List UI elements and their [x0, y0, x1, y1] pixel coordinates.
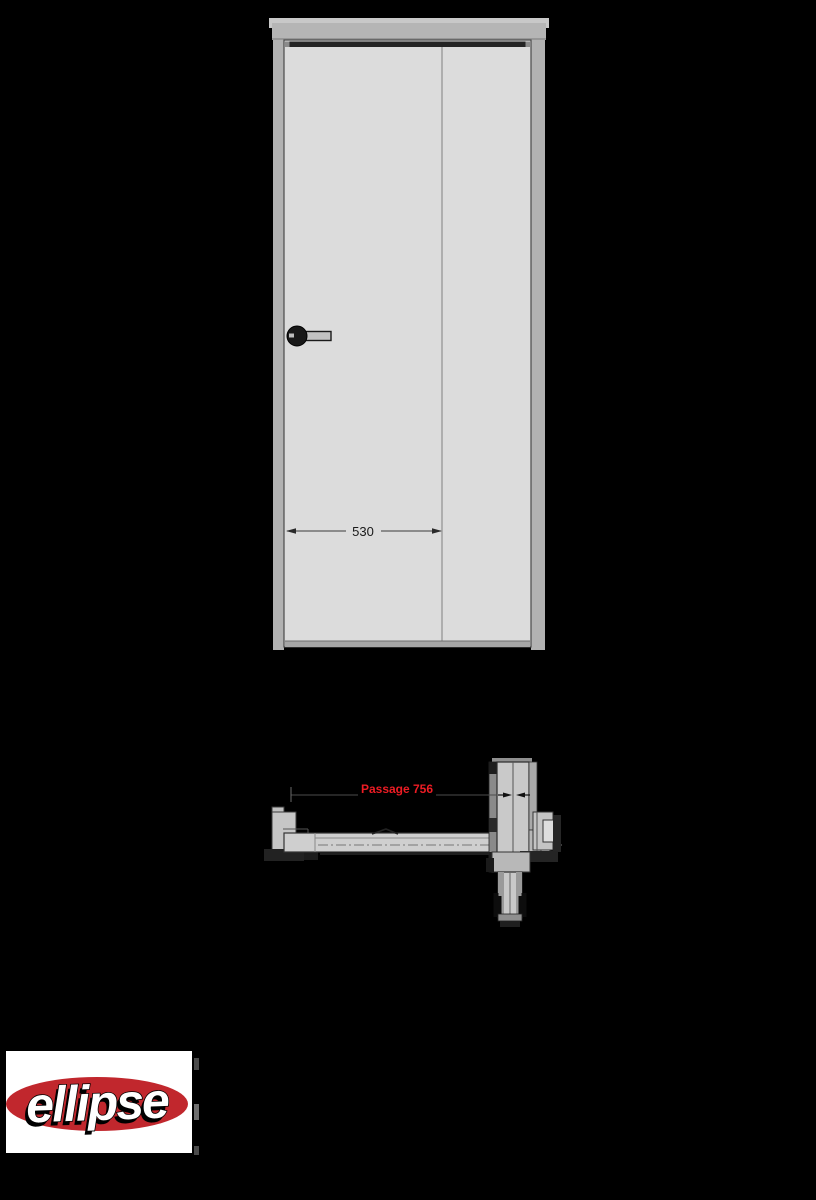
door-bottom-rail — [285, 641, 530, 647]
door-leaf — [284, 40, 531, 647]
ellipse-logo: ellipse ellipse — [4, 1049, 199, 1155]
door-elevation-view: 530 — [269, 18, 549, 650]
door-top-seal — [289, 42, 526, 48]
leaf-width-label: 530 — [352, 524, 374, 539]
door-frame-header — [269, 18, 549, 40]
plan-right-jamb — [533, 812, 561, 852]
plan-handle-stile — [486, 851, 558, 927]
door-jamb-right — [531, 40, 545, 650]
passage-label: Passage 756 — [361, 782, 433, 796]
door-plan-view: Passage 756 — [264, 758, 562, 927]
drawing-canvas: 530 — [0, 0, 816, 1200]
passage-dimension: Passage 756 — [291, 782, 497, 802]
door-jamb-left — [273, 40, 284, 650]
logo-text: ellipse — [25, 1073, 170, 1134]
technical-drawing: 530 — [0, 0, 816, 1200]
